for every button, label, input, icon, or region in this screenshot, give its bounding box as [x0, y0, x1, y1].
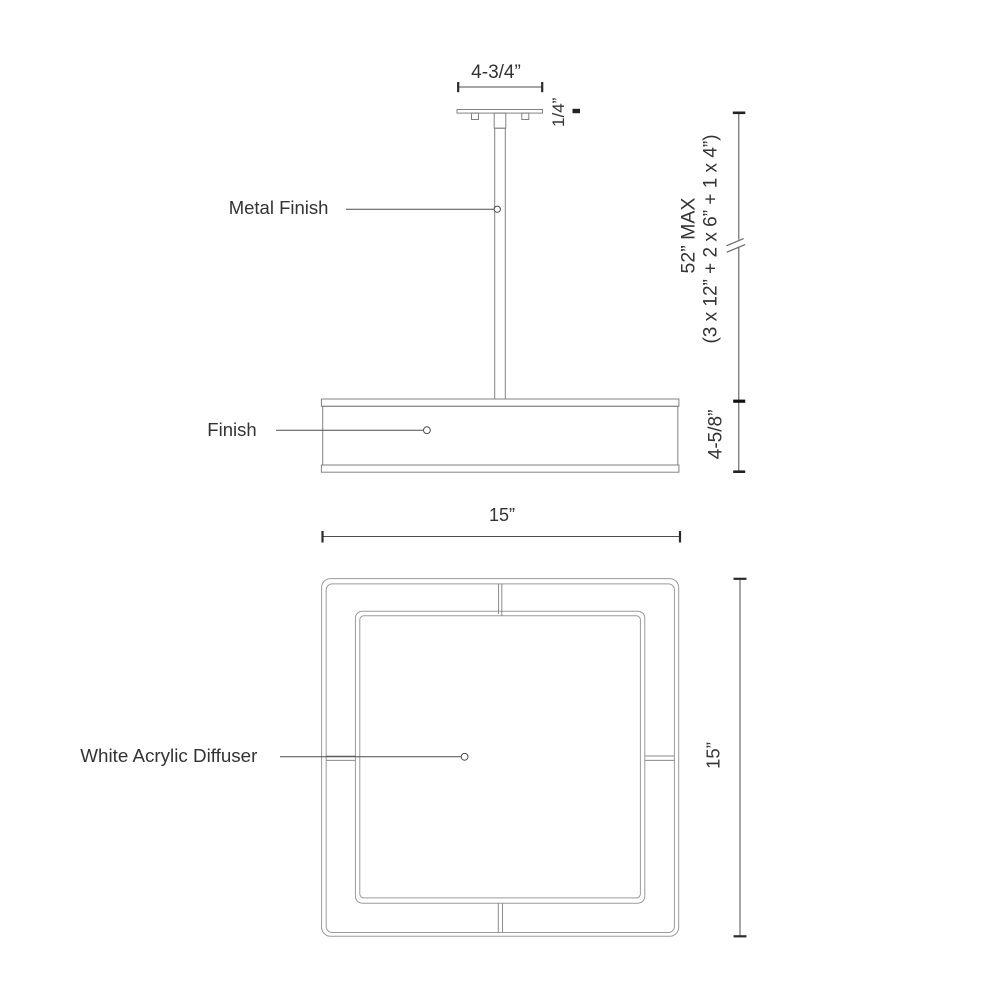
svg-text:Metal Finish: Metal Finish	[229, 197, 329, 218]
svg-text:1/4”: 1/4”	[549, 97, 568, 127]
svg-text:4-5/8”: 4-5/8”	[706, 410, 727, 460]
svg-text:(3 x 12” + 2 x 6” + 1 x 4”): (3 x 12” + 2 x 6” + 1 x 4”)	[701, 134, 722, 343]
svg-text:Finish: Finish	[207, 419, 256, 440]
svg-text:4-3/4”: 4-3/4”	[471, 62, 521, 83]
svg-text:White Acrylic Diffuser: White Acrylic Diffuser	[80, 745, 257, 766]
svg-text:52” MAX: 52” MAX	[678, 198, 700, 274]
svg-text:15”: 15”	[489, 505, 515, 525]
svg-text:15”: 15”	[703, 742, 724, 769]
